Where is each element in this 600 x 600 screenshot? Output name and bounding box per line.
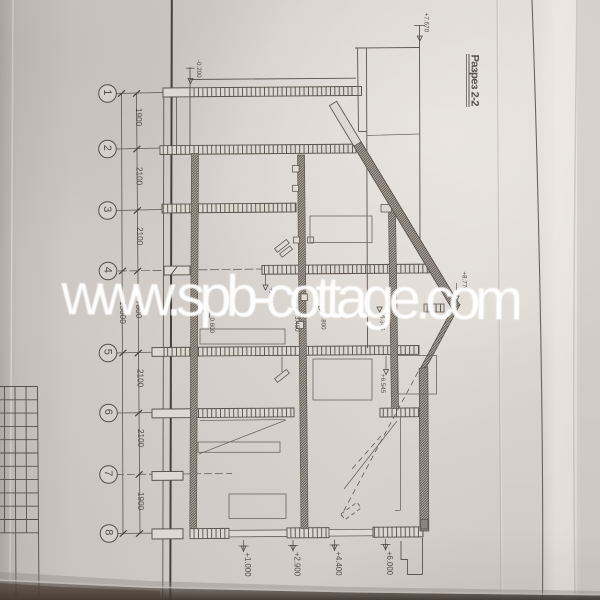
svg-text:2100: 2100 xyxy=(135,227,144,246)
svg-text:1: 1 xyxy=(101,89,113,95)
svg-text:1900: 1900 xyxy=(134,108,143,127)
svg-text:6: 6 xyxy=(102,409,114,415)
svg-text:2: 2 xyxy=(101,145,113,151)
svg-text:5: 5 xyxy=(101,349,113,355)
svg-text:+1.000: +1.000 xyxy=(243,553,252,578)
svg-text:7: 7 xyxy=(102,470,114,476)
svg-text:1900: 1900 xyxy=(136,492,145,511)
svg-text:3: 3 xyxy=(101,206,113,212)
svg-text:2100: 2100 xyxy=(135,167,144,186)
svg-text:2100: 2100 xyxy=(136,369,145,388)
svg-text:Разрез 2-2: Разрез 2-2 xyxy=(469,55,481,107)
svg-text:-0.200: -0.200 xyxy=(195,60,202,78)
svg-text:+6.545: +6.545 xyxy=(379,374,386,394)
svg-text:www.spb-cottage.com: www.spb-cottage.com xyxy=(60,262,524,333)
svg-text:8: 8 xyxy=(102,529,114,535)
svg-text:2100: 2100 xyxy=(136,429,145,448)
svg-text:+7.670: +7.670 xyxy=(423,13,430,33)
